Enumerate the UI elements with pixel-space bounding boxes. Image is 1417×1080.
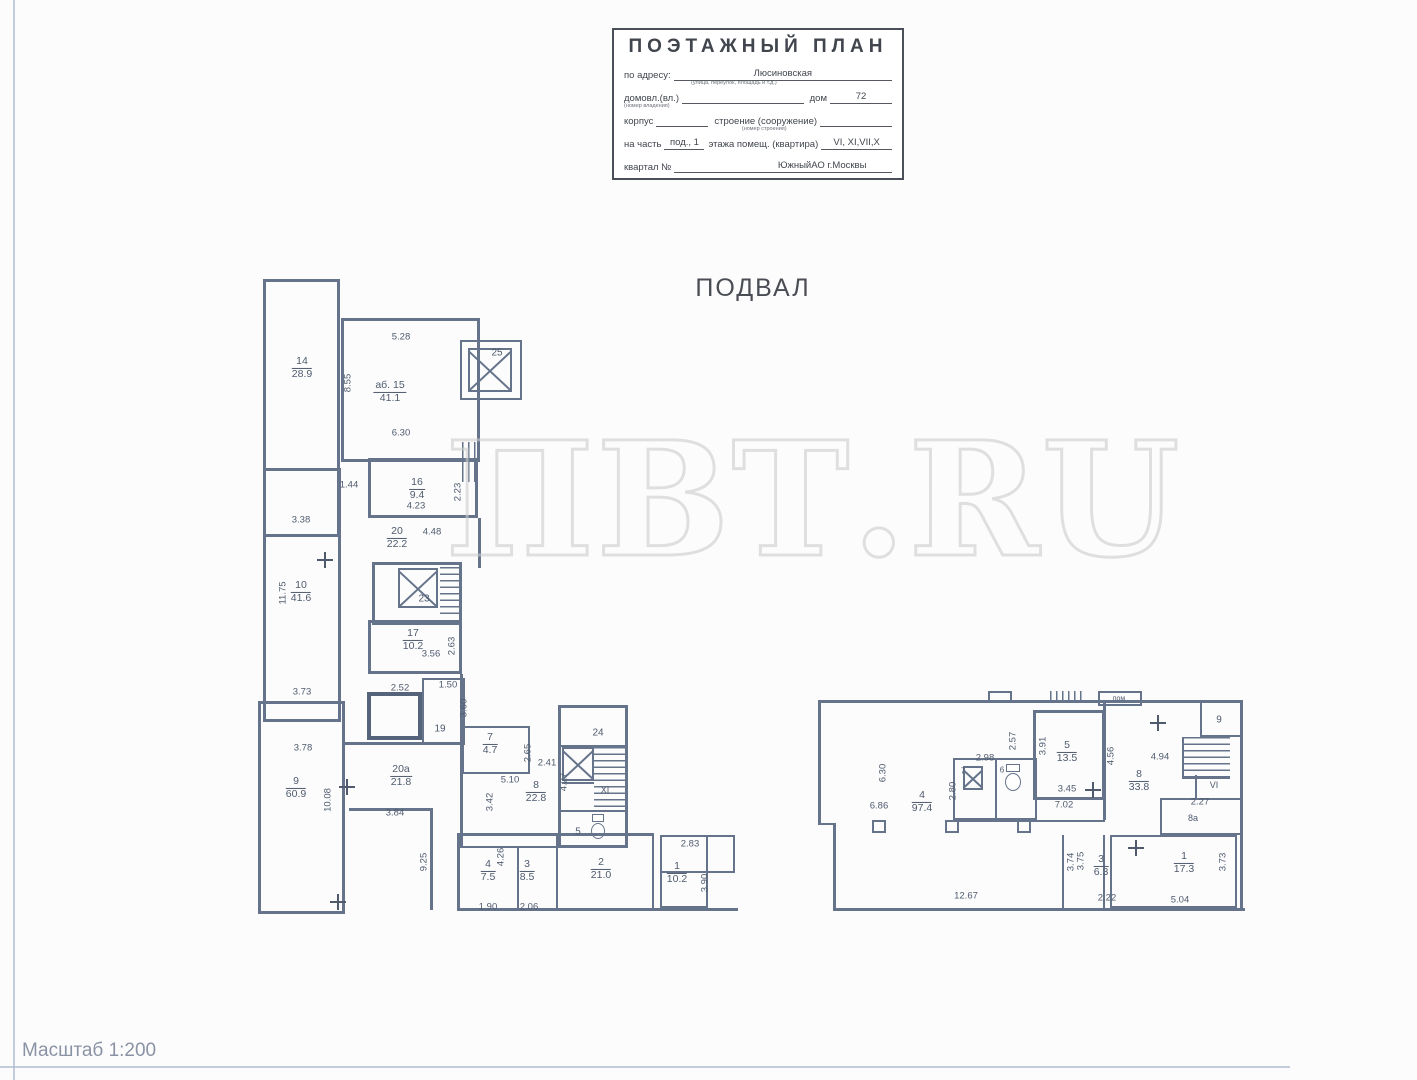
dimension-label: 3.60 [459,699,470,718]
room-label: 221.0 [591,857,611,881]
room-label: 20а21.8 [390,764,412,788]
room-label: 497.4 [912,790,932,814]
measure-tick [317,552,333,568]
wall [459,846,556,848]
dimension-label: 1.44 [340,480,359,491]
text-label: 24 [592,728,603,739]
wall [1200,735,1240,737]
pier-box [988,691,1012,702]
wall [652,833,654,908]
dimension-label: 11.75 [278,581,289,604]
dimension-label: 3.56 [422,649,441,660]
wall [560,810,626,812]
dimension-label: 3.75 [1076,852,1087,871]
room-label: аб. 1541.1 [373,380,406,404]
dimension-label: 5.28 [392,332,411,343]
toilet-bowl [1005,773,1021,791]
dimension-label: 6.86 [870,801,889,812]
measure-tick [1085,782,1101,798]
dimension-label: 2.41 [538,758,557,769]
wall [833,908,1245,911]
dimension-label: 3.78 [294,743,313,754]
dimension-label: 4.23 [407,501,426,512]
floor-plan-drawing: 1428.9аб. 1541.1169.42022.21041.61710.29… [0,0,1417,1080]
room-label: 833.8 [1129,769,1149,793]
wall [1182,737,1184,779]
wall [430,808,433,910]
dimension-label: 3.73 [1218,853,1229,872]
text-label: XI [601,785,610,795]
dimension-label: 2.52 [391,683,410,694]
text-label: 6 [1000,766,1004,775]
scanned-floor-plan-page: ПОЭТАЖНЫЙ ПЛАН по адресу: Люсиновская (у… [0,0,1417,1080]
room-label: 822.8 [526,780,546,804]
text-label: 8а [1188,813,1198,823]
dimension-label: 4.26 [496,848,507,867]
dimension-label: 3.90 [700,874,711,893]
room-label: 169.4 [409,477,425,501]
dimension-label: 3.73 [293,687,312,698]
room-label: 1710.2 [403,628,423,652]
scale-note: Масштаб 1:200 [22,1040,156,1062]
elevator-25-cross [468,348,512,392]
dimension-label: 1.90 [479,902,498,913]
dimension-label: 2.80 [948,782,959,801]
measure-tick [1150,715,1166,731]
measure-tick [330,894,346,910]
wall [818,700,821,825]
wall [345,742,462,745]
dimension-label: 3.91 [1038,737,1049,756]
text-label: 19 [434,724,445,735]
dimension-label: 4.48 [423,527,442,538]
dimension-label: 9.25 [419,853,430,872]
toilet-tank [1006,764,1020,772]
wall [1240,700,1243,910]
shower-tray [963,766,983,790]
dimension-label: 2.22 [1098,893,1117,904]
wall [818,700,1242,703]
dimension-label: 2.27 [1191,797,1210,808]
text-label: 7 [961,767,965,776]
dimension-label: 5.04 [1171,895,1190,906]
dimension-label: 3.38 [292,515,311,526]
text-label: VI [1210,780,1219,790]
wall [1182,777,1230,779]
dimension-label: 3.42 [485,793,496,812]
room-label: 2022.2 [387,526,407,550]
room-19-outline [367,692,422,740]
dimension-label: 2.98 [976,753,995,764]
column [1017,820,1031,833]
wall [1200,703,1202,737]
stairs-hatch [1184,737,1230,777]
room-label: 960.9 [286,776,306,800]
dimension-label: 1.50 [439,680,458,691]
wall [1160,798,1162,835]
dimension-label: 2.83 [681,839,700,850]
measure-tick [1128,840,1144,856]
dimension-label: 4.27 [559,773,570,792]
dimension-label: 12.67 [954,891,978,902]
dimension-label: 2.57 [1008,732,1019,751]
text-label: пом [1113,696,1126,703]
wall [833,823,836,910]
text-label: 23 [418,594,429,605]
wall [556,833,558,908]
dimension-label: 10.08 [323,788,334,812]
dimension-label: 3.45 [1058,784,1077,795]
wall [457,833,460,910]
dimension-label: 2.06 [520,902,539,913]
room-label: 74.7 [483,732,498,756]
dimension-label: 8.55 [343,374,354,393]
room-label: 47.5 [481,859,496,883]
dimension-label: 6.30 [878,764,889,783]
room-label: 36.3 [1094,854,1109,878]
toilet-bowl [591,823,605,839]
wall [457,908,738,911]
wall [1062,835,1064,908]
dimension-label: 4.94 [1151,752,1170,763]
dimension-label: 4.56 [1106,747,1117,766]
dimension-label: 2.63 [447,637,458,656]
wall [995,758,997,820]
column [872,820,886,833]
dimension-label: 2.23 [453,483,464,502]
stairs-23-hatch [440,567,460,619]
room-label: 1041.6 [291,580,311,604]
wall [478,518,481,568]
measure-tick [339,779,355,795]
text-label: 25 [491,348,502,359]
room-label: 1428.9 [292,356,312,380]
dimension-label: 6.30 [392,428,411,439]
dimension-label: 7.02 [1055,800,1074,811]
room-label: 513.5 [1057,740,1077,764]
room-label: 117.3 [1174,851,1194,875]
toilet-tank [592,814,604,822]
room-label: 110.2 [667,861,687,885]
wall [517,846,519,908]
dimension-label: 5.10 [501,775,520,786]
text-label: 9 [1216,715,1222,726]
text-label: 5 [575,827,581,838]
column [945,820,959,833]
dimension-label: 3.84 [386,808,405,819]
room-label: 38.5 [520,859,535,883]
dimension-label: 2.65 [523,744,534,763]
stairs-hatch [594,747,626,809]
pier-box-hatch [1050,691,1084,702]
